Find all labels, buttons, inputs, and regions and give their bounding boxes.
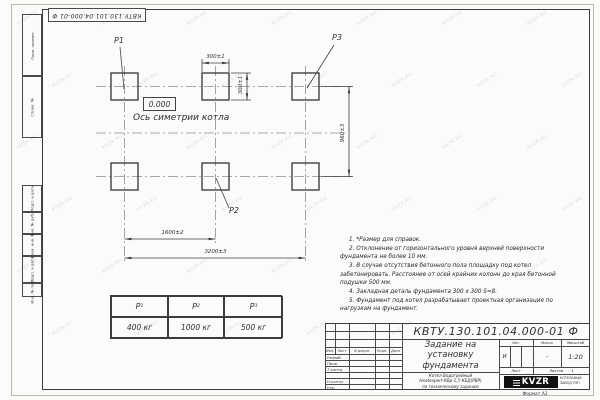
tb-lit-label: Лит. (499, 339, 533, 346)
note-3: 3. В случае отсутствия бетонного пола пл… (340, 262, 578, 288)
product-line: по техническому заданию (422, 384, 479, 390)
tb-row-tkontr: Т.контр. (327, 367, 349, 373)
notes-block: 1. *Размер для справок. 2. Отклонение от… (340, 236, 578, 314)
tb-sheets-label: Листов (549, 368, 563, 373)
note-1: 1. *Размер для справок. (340, 236, 578, 245)
margin-label: Инв. № подл. (30, 277, 35, 303)
logo-stripes-icon (513, 378, 520, 386)
tb-scale-value: 1:20 (561, 346, 590, 367)
tb-col-izm: Изм. (325, 347, 335, 354)
title-line: Задание на (425, 340, 477, 350)
dimension-side-height: 300±1 (236, 71, 246, 99)
title-line: фундамента (422, 361, 478, 371)
kvzr-logo: KVZR (504, 376, 558, 388)
tb-col-list: Лист (335, 347, 349, 354)
tb-col-podp: Подп. (375, 347, 389, 354)
tb-mass-value: - (533, 346, 561, 367)
pad-label-p1: P1 (108, 35, 130, 45)
margin-cell-vzam-inv: Взам. инв. № (22, 234, 42, 256)
tb-col-ndocum: N докум. (349, 347, 375, 354)
margin-cell-sprav-no: Справ. № (22, 76, 42, 138)
load-table-header-p2: P2 (168, 296, 224, 317)
format-label: Формат А3 (495, 390, 575, 399)
margin-label: Взам. инв. № (30, 232, 35, 258)
load-table-header-p3: P3 (224, 296, 283, 317)
note-2: 2. Отклонение от горизонтального уровня … (340, 245, 578, 262)
note-4: 4. Закладная деталь фундамента 300 х 300… (340, 288, 578, 297)
logo-text: KVZR (522, 377, 549, 387)
tb-lit-value: И (499, 346, 510, 367)
dimension-row-spacing: 960±3 (338, 119, 348, 147)
pad-label-p2: P2 (223, 205, 245, 215)
tb-sheets-value: 1 (571, 368, 573, 373)
company-name: КОТЕЛЬНЫЙ ЗАВОД РЭП (560, 376, 589, 389)
level-mark-box: 0.000 (143, 97, 176, 111)
margin-label: Перв. примен. (30, 31, 35, 60)
company-line: ЗАВОД РЭП (560, 381, 589, 386)
note-5: 5. Фундамент под котел разрабатывает про… (340, 297, 578, 314)
load-table-header-p1: P1 (111, 296, 168, 317)
axis-of-symmetry-label: Ось симетрии котла (133, 113, 253, 124)
dimension-column-spacing: 1600±2 (152, 229, 193, 237)
drawing-sheet: KVZR.RUKVZR.RUKVZR.RUKVZR.RUKVZR.RUKVZR.… (0, 0, 600, 400)
margin-cell-inv-podl: Инв. № подл. (22, 283, 42, 297)
tb-row-utv: Утв. (327, 385, 349, 391)
load-value-p3: 500 кг (224, 317, 283, 338)
load-table: P1 P2 P3 400 кг 1000 кг 500 кг (110, 295, 282, 339)
margin-label: Справ. № (30, 98, 35, 116)
load-value-p1: 400 кг (111, 317, 168, 338)
dimension-total-length: 3200±3 (195, 248, 236, 256)
title-block-doc-number: КВТУ.130.101.04.000-01 Ф (402, 323, 590, 339)
margin-cell-perv-primen: Перв. примен. (22, 14, 42, 76)
margin-cell-inv-dubl: Инв. № дубл. (22, 212, 42, 234)
dimension-top-width: 300±1 (195, 53, 236, 61)
tb-col-data: Дата (389, 347, 402, 354)
tb-sheet-label: Лист (499, 367, 533, 374)
title-block-product: Котел Водогрейный Heatexpert-КВр-1,5-КБД… (402, 372, 499, 390)
pad-label-p3: P3 (326, 32, 348, 42)
title-line: установку (428, 350, 474, 360)
top-stamp-doc-number: КВТУ.130.101.04.000-01 Ф (52, 12, 141, 19)
top-stamp-box: КВТУ.130.101.04.000-01 Ф (48, 8, 146, 22)
title-block-title: Задание на установку фундамента (402, 339, 499, 372)
tb-scale-label: Масштаб (561, 339, 590, 346)
tb-sheets-cell: Листов 1 (533, 367, 590, 374)
margin-cell-podp-data-1: Подп. и дата (22, 185, 42, 212)
tb-mass-label: Масса (533, 339, 561, 346)
margin-label: Подп. и дата (30, 186, 35, 212)
load-value-p2: 1000 кг (168, 317, 224, 338)
